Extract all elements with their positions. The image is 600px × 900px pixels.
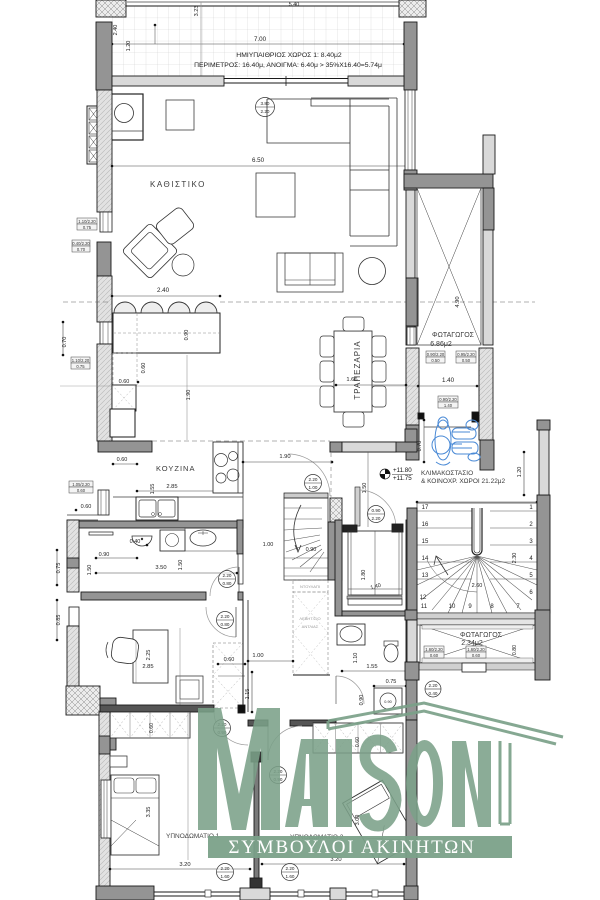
svg-text:2.30: 2.30 (512, 553, 518, 564)
svg-text:0.75: 0.75 (76, 364, 85, 369)
svg-text:2.60: 2.60 (472, 583, 483, 589)
svg-text:0.90: 0.90 (359, 695, 365, 706)
svg-text:5.40: 5.40 (289, 2, 300, 8)
svg-text:ΦΩΤΑΓΩΓΟΣ: ΦΩΤΑΓΩΓΟΣ (460, 632, 503, 639)
svg-text:1.05/2.20: 1.05/2.20 (72, 482, 90, 487)
svg-text:2.20: 2.20 (286, 866, 295, 871)
svg-text:1.90: 1.90 (279, 454, 290, 460)
svg-text:1.60: 1.60 (221, 874, 230, 879)
svg-text:1.66: 1.66 (346, 377, 357, 383)
svg-text:ΤΡΑΠΕΖΑΡΙΑ: ΤΡΑΠΕΖΑΡΙΑ (353, 340, 362, 399)
svg-text:0.60: 0.60 (81, 504, 92, 510)
svg-text:ΦΩΤΑΓΩΓΟΣ: ΦΩΤΑΓΩΓΟΣ (432, 332, 475, 339)
svg-text:1.40: 1.40 (442, 377, 455, 384)
svg-text:1.20: 1.20 (517, 467, 523, 478)
svg-text:& ΚΟΙΝΟΧΡ. ΧΩΡΟΙ 21.22μ2: & ΚΟΙΝΟΧΡ. ΧΩΡΟΙ 21.22μ2 (421, 478, 506, 485)
svg-text:1.00: 1.00 (252, 653, 263, 659)
svg-text:2.20: 2.20 (223, 573, 232, 578)
svg-text:0.40/2.20: 0.40/2.20 (72, 241, 90, 246)
svg-text:0.90: 0.90 (184, 330, 190, 341)
svg-text:0.60: 0.60 (117, 457, 128, 463)
svg-text:0.60: 0.60 (472, 653, 481, 658)
svg-text:ΛΕΒΗΤ/ΣΙΟ: ΛΕΒΗΤ/ΣΙΟ (299, 616, 320, 621)
svg-text:1.80: 1.80 (361, 570, 367, 581)
svg-text:0.60: 0.60 (141, 363, 147, 374)
svg-text:0.50: 0.50 (462, 358, 471, 363)
svg-text:15: 15 (422, 539, 429, 545)
svg-text:1.10/2.20: 1.10/2.20 (78, 219, 96, 224)
svg-text:1.50: 1.50 (87, 565, 93, 576)
svg-text:2.20: 2.20 (221, 614, 230, 619)
svg-text:0.90/2.20: 0.90/2.20 (427, 352, 445, 357)
svg-text:3.23: 3.23 (194, 6, 200, 17)
svg-text:0.60: 0.60 (77, 488, 86, 493)
svg-text:7.00: 7.00 (254, 36, 267, 43)
svg-text:17: 17 (422, 505, 429, 511)
svg-text:4.90: 4.90 (455, 296, 461, 307)
svg-text:0.75: 0.75 (83, 225, 92, 230)
svg-text:2.20: 2.20 (309, 477, 318, 482)
svg-text:0.60: 0.60 (149, 723, 155, 733)
svg-text:2.40: 2.40 (113, 25, 119, 36)
svg-text:16: 16 (422, 522, 429, 528)
svg-text:2.40: 2.40 (157, 287, 170, 294)
svg-text:0.60: 0.60 (430, 653, 439, 658)
svg-text:1.60/2.20: 1.60/2.20 (425, 647, 443, 652)
svg-text:0.60: 0.60 (119, 379, 130, 385)
svg-text:ΠΕΡΙΜΕΤΡΟΣ: 16.40μ, ΑΝΟΙΓΜΑ: 6: ΠΕΡΙΜΕΤΡΟΣ: 16.40μ, ΑΝΟΙΓΜΑ: 6.40μ > 35%… (194, 62, 382, 69)
svg-text:1.00: 1.00 (309, 485, 318, 490)
svg-text:1.15: 1.15 (245, 689, 251, 700)
svg-text:0.90/2.20: 0.90/2.20 (439, 397, 457, 402)
svg-text:1.55: 1.55 (150, 484, 156, 495)
svg-text:12: 12 (420, 595, 427, 601)
svg-text:0.80: 0.80 (223, 581, 232, 586)
svg-text:0.90: 0.90 (384, 700, 391, 704)
svg-text:ΣΥΜΒΟΥΛΟΙ ΑΚΙΝΗΤΩΝ: ΣΥΜΒΟΥΛΟΙ ΑΚΙΝΗΤΩΝ (228, 837, 475, 858)
svg-text:1.50: 1.50 (178, 560, 184, 571)
svg-text:0.70: 0.70 (77, 247, 86, 252)
svg-text:1.60: 1.60 (286, 874, 295, 879)
svg-text:+11.75: +11.75 (393, 475, 412, 482)
svg-text:1.50: 1.50 (362, 483, 368, 494)
svg-text:1.40: 1.40 (444, 403, 453, 408)
svg-text:3.35: 3.35 (146, 807, 152, 818)
svg-text:10: 10 (449, 604, 456, 610)
svg-text:3.80: 3.80 (261, 101, 270, 106)
svg-text:0.80: 0.80 (512, 645, 518, 655)
svg-text:ΚΑΘΙΣΤΙΚΟ: ΚΑΘΙΣΤΙΚΟ (150, 180, 206, 189)
svg-text:2.20: 2.20 (372, 516, 381, 521)
svg-text:ΚΟΥΖΙΝΑ: ΚΟΥΖΙΝΑ (156, 464, 195, 473)
svg-text:1.60/2.20: 1.60/2.20 (467, 647, 485, 652)
svg-text:0.40: 0.40 (130, 539, 141, 545)
svg-text:14: 14 (422, 556, 429, 562)
svg-text:0.75: 0.75 (386, 679, 397, 685)
svg-text:0.40: 0.40 (429, 691, 438, 696)
svg-text:1.10/2.20: 1.10/2.20 (72, 358, 90, 363)
svg-text:0.70: 0.70 (417, 441, 423, 452)
svg-text:1.55: 1.55 (366, 664, 377, 670)
svg-text:0.80: 0.80 (221, 622, 230, 627)
svg-text:0.50: 0.50 (431, 358, 440, 363)
svg-text:0.60: 0.60 (355, 737, 361, 747)
svg-text:6.86μ2: 6.86μ2 (430, 341, 452, 348)
svg-text:2.20: 2.20 (429, 683, 438, 688)
svg-text:2.85: 2.85 (142, 664, 153, 670)
svg-text:1.20: 1.20 (126, 41, 132, 52)
svg-text:13: 13 (422, 573, 429, 579)
svg-text:2.20: 2.20 (221, 866, 230, 871)
svg-text:3.20: 3.20 (179, 862, 190, 868)
svg-text:6.50: 6.50 (252, 157, 265, 164)
svg-text:ΑΝΤΛΙΑΣ: ΑΝΤΛΙΑΣ (302, 624, 319, 629)
svg-text:ΚΛΙΜΑΚΟΣΤΑΣΙΟ: ΚΛΙΜΑΚΟΣΤΑΣΙΟ (421, 470, 473, 477)
svg-text:ΝΤΟΥΛΑΠΙ: ΝΤΟΥΛΑΠΙ (300, 584, 320, 589)
svg-text:1.10: 1.10 (353, 653, 359, 664)
svg-text:2.20: 2.20 (261, 109, 270, 114)
svg-text:0.90: 0.90 (99, 552, 110, 558)
svg-text:3.50: 3.50 (155, 565, 166, 571)
svg-text:0.95/2.20: 0.95/2.20 (457, 352, 475, 357)
svg-text:2.85: 2.85 (166, 484, 177, 490)
svg-text:0.90: 0.90 (306, 547, 317, 553)
svg-text:1.00: 1.00 (263, 542, 274, 548)
svg-text:ΗΜΙΥΠΑΙΘΡΙΟΣ ΧΩΡΟΣ 1: 8.40μ2: ΗΜΙΥΠΑΙΘΡΙΟΣ ΧΩΡΟΣ 1: 8.40μ2 (236, 52, 342, 59)
svg-text:0.60: 0.60 (224, 657, 235, 663)
svg-text:2.25: 2.25 (146, 650, 152, 661)
svg-text:11: 11 (421, 604, 428, 610)
svg-text:0.90: 0.90 (372, 508, 381, 513)
svg-text:+11.80: +11.80 (393, 467, 412, 474)
